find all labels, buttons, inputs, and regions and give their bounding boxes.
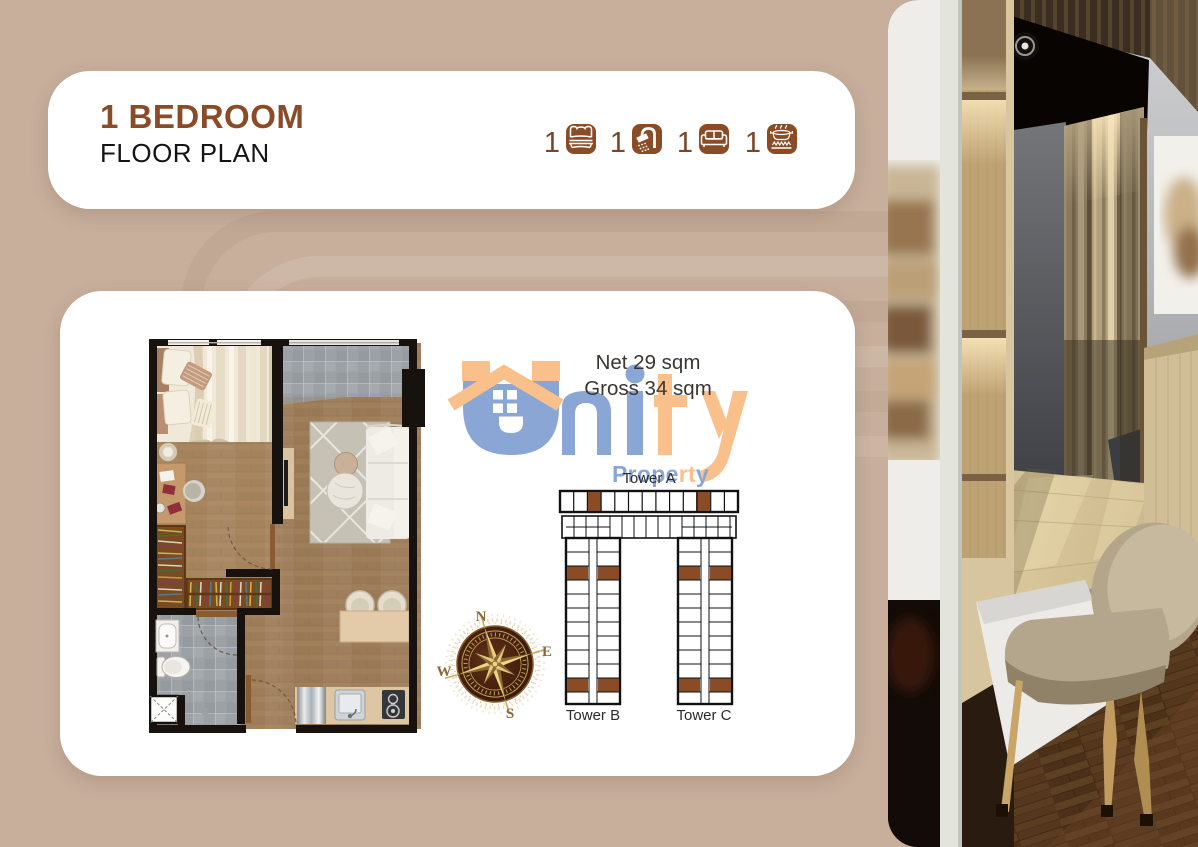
svg-text:S: S	[506, 706, 514, 722]
svg-text:1: 1	[745, 127, 761, 159]
svg-text:N: N	[476, 609, 487, 625]
svg-text:1: 1	[677, 127, 693, 159]
svg-text:W: W	[437, 664, 452, 680]
svg-text:Tower B: Tower B	[566, 707, 620, 724]
svg-text:1: 1	[610, 127, 626, 159]
svg-text:Tower A: Tower A	[622, 470, 675, 487]
svg-text:1: 1	[544, 127, 560, 159]
svg-text:Tower C: Tower C	[676, 707, 731, 724]
svg-text:E: E	[542, 644, 552, 660]
